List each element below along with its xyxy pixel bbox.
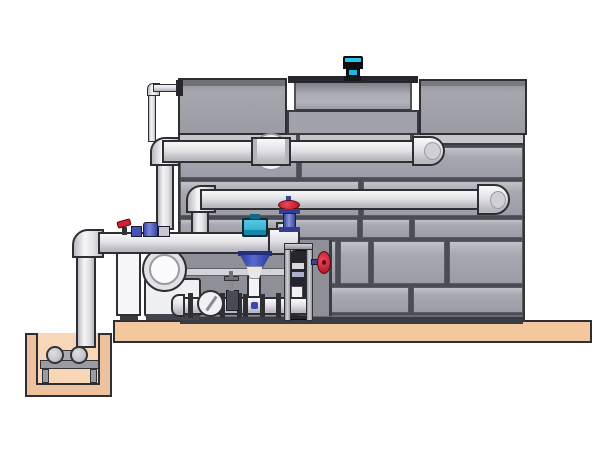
middle-pipe-end-elbow bbox=[477, 184, 510, 215]
pipe-flange bbox=[188, 293, 193, 318]
suction-pipe-drop bbox=[76, 252, 96, 348]
pipe-flange bbox=[276, 293, 281, 318]
dosing-fitting-blue bbox=[131, 226, 142, 237]
rack-rail-left bbox=[284, 243, 291, 321]
sump-pump-casing bbox=[70, 346, 88, 364]
thin-pipe-flange bbox=[176, 80, 183, 96]
dosing-fitting-silver bbox=[158, 226, 170, 237]
cabinet-foot bbox=[120, 316, 138, 321]
check-valve-disc bbox=[197, 290, 224, 317]
sump-pump-leg bbox=[90, 369, 97, 383]
middle-return-pipe bbox=[200, 189, 488, 210]
rack-label-slit bbox=[292, 272, 304, 277]
upper-supply-pipe bbox=[162, 140, 424, 163]
illustration-canvas bbox=[0, 0, 600, 450]
rack-rail-right bbox=[306, 243, 313, 321]
gate-valve-flange bbox=[279, 227, 300, 232]
pipe-coupling-sleeve bbox=[251, 137, 291, 166]
check-valve-slot bbox=[205, 296, 217, 312]
rack-label-slit bbox=[292, 263, 304, 269]
fan-shroud-drum bbox=[294, 83, 412, 111]
small-drain-valve-stem bbox=[229, 281, 234, 291]
upper-pipe-drop bbox=[156, 158, 174, 230]
sump-pump-leg bbox=[42, 369, 49, 383]
tower-panel bbox=[449, 241, 523, 284]
fan-motor-base bbox=[344, 76, 361, 81]
tower-top-right-box bbox=[419, 79, 527, 135]
small-drain-valve-body bbox=[226, 290, 239, 311]
fan-motor-cap bbox=[343, 56, 363, 64]
rack-crossbar bbox=[284, 243, 313, 250]
pipe-flange bbox=[260, 294, 265, 317]
sump-pump-motor bbox=[46, 346, 64, 364]
tower-panel bbox=[340, 241, 369, 284]
coupling-edge bbox=[285, 139, 289, 164]
fan-motor bbox=[342, 55, 364, 81]
upper-pipe-end-elbow bbox=[412, 136, 445, 166]
pipe-flange bbox=[243, 294, 248, 317]
manifold-end-cap bbox=[171, 294, 185, 317]
tower-panel bbox=[362, 219, 410, 238]
top-box-edge bbox=[180, 80, 285, 86]
tee-drain-plug bbox=[251, 302, 258, 309]
ball-valve-stem bbox=[122, 227, 127, 235]
actuator-top-port bbox=[250, 214, 260, 219]
actuator-band bbox=[244, 230, 266, 235]
small-drain-valve-spigot bbox=[229, 271, 233, 277]
control-valve-actuator bbox=[242, 218, 268, 237]
dosing-pump-blue bbox=[143, 222, 158, 237]
tower-panel bbox=[413, 287, 523, 313]
top-box-edge bbox=[421, 81, 525, 86]
coupling-edge bbox=[253, 139, 257, 164]
fan-deck-recess bbox=[287, 110, 419, 135]
pump-suction-inlet bbox=[149, 254, 180, 285]
fan-motor-window bbox=[349, 70, 357, 75]
elbow-end-cap bbox=[424, 142, 441, 160]
gate-valve-body bbox=[283, 213, 296, 228]
tower-base-strip bbox=[180, 315, 523, 324]
elbow-end-cap bbox=[490, 191, 506, 209]
side-valve-hub bbox=[322, 260, 326, 265]
thin-pipe-vertical bbox=[148, 92, 156, 142]
tower-top-left-box bbox=[178, 78, 287, 135]
tower-panel bbox=[414, 219, 523, 238]
tower-panel bbox=[373, 241, 445, 284]
